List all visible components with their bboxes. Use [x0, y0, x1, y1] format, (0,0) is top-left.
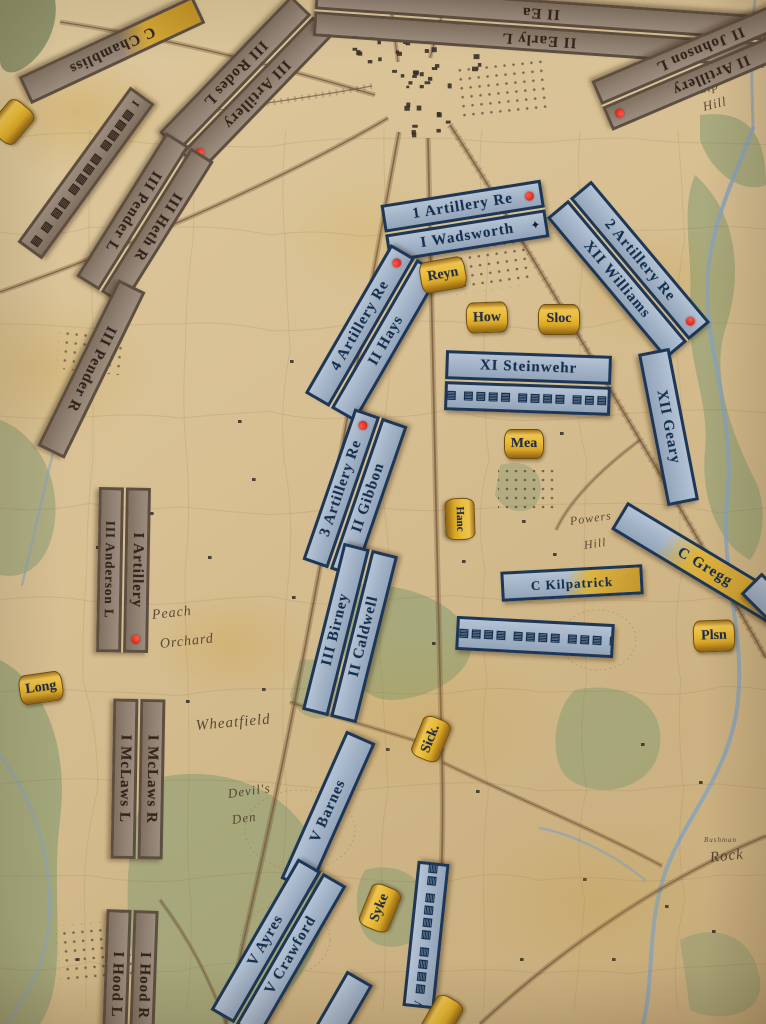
place-label-rock-creek: Rock	[709, 846, 745, 866]
unit-label: V ▤▤▤▤ ▤▤▤▤ ▤▤	[413, 861, 439, 1009]
unit-label: I Hood R	[135, 952, 152, 1020]
leader-marker-label: Reyn	[426, 265, 459, 284]
unit-label: II Ea	[521, 4, 560, 22]
leader-marker-label: Mea	[511, 437, 537, 451]
unit-block-row: ▤▤ ▤▤▤▤ ▤▤▤▤ ▤▤▤ 1	[444, 381, 611, 416]
gettysburg-board-photo: CulpHillPeachOrchardWheatfieldDevil'sDen…	[0, 0, 766, 1024]
star-icon: ✦	[529, 217, 541, 232]
red-dot-icon	[684, 315, 697, 328]
leader-marker-label: Sick.	[419, 723, 443, 755]
leader-marker-plsn[interactable]: Plsn	[692, 619, 735, 652]
place-label-bushman-farm: Bushman	[704, 836, 737, 844]
unit-block-hood[interactable]: I Hood RI Hood L	[101, 909, 158, 1024]
unit-block-row: I McLaws L	[111, 699, 139, 859]
unit-label: I McLaws R	[143, 735, 160, 824]
unit-label: XI Steinwehr	[480, 358, 578, 376]
red-dot-icon	[613, 108, 625, 120]
place-label-powers-hill-2: Hill	[583, 535, 608, 553]
unit-label: II Early L	[501, 29, 577, 49]
unit-label: I Artillery	[128, 532, 144, 608]
red-dot-icon	[131, 635, 140, 644]
leader-marker-sloc[interactable]: Sloc	[538, 304, 580, 335]
unit-block-row: I Artillery	[123, 488, 151, 653]
unit-block-row: I McLaws R	[138, 699, 166, 859]
leader-marker-hanc[interactable]: Hanc	[444, 497, 475, 540]
unit-label: XII Geary	[653, 389, 682, 466]
unit-block-row: I Hood R	[128, 910, 158, 1024]
leader-marker-label: Sloc	[547, 312, 572, 326]
unit-block-mclaws[interactable]: I McLaws RI McLaws L	[111, 699, 166, 860]
unit-label: C Kilpatrick	[530, 574, 613, 591]
leader-marker-label: Hanc	[454, 506, 466, 531]
unit-block-anderson-artillery[interactable]: I ArtilleryIII Anderson L	[96, 487, 151, 653]
unit-label: I Hood L	[108, 951, 125, 1018]
place-label-devils-den-2: Den	[231, 809, 258, 828]
unit-block-row: I Hood L	[101, 909, 131, 1024]
unit-block-row: XI Steinwehr	[445, 350, 612, 385]
unit-block-row: III Anderson L	[96, 487, 124, 652]
leader-marker-label: Plsn	[701, 629, 727, 644]
leader-marker-long[interactable]: Long	[17, 670, 65, 706]
leader-marker-label: Syke	[368, 892, 392, 924]
unit-label: I McLaws L	[116, 734, 133, 823]
unit-block-steinwehr[interactable]: XI Steinwehr▤▤ ▤▤▤▤ ▤▤▤▤ ▤▤▤ 1	[444, 350, 612, 416]
leader-marker-how[interactable]: How	[465, 301, 508, 333]
unit-label: XII ▤▤▤▤ ▤▤▤▤ ▤▤▤ ▤ ▤	[455, 626, 615, 648]
leader-marker-mea[interactable]: Mea	[504, 429, 544, 459]
red-dot-icon	[524, 190, 534, 200]
unit-label: III Anderson L	[102, 521, 117, 619]
unit-label: ▤▤ ▤▤▤▤ ▤▤▤▤ ▤▤▤ 1	[444, 390, 611, 408]
red-dot-icon	[357, 420, 368, 431]
leader-marker-label: How	[473, 310, 501, 325]
leader-marker-label: Long	[25, 679, 58, 697]
red-dot-icon	[390, 257, 402, 269]
